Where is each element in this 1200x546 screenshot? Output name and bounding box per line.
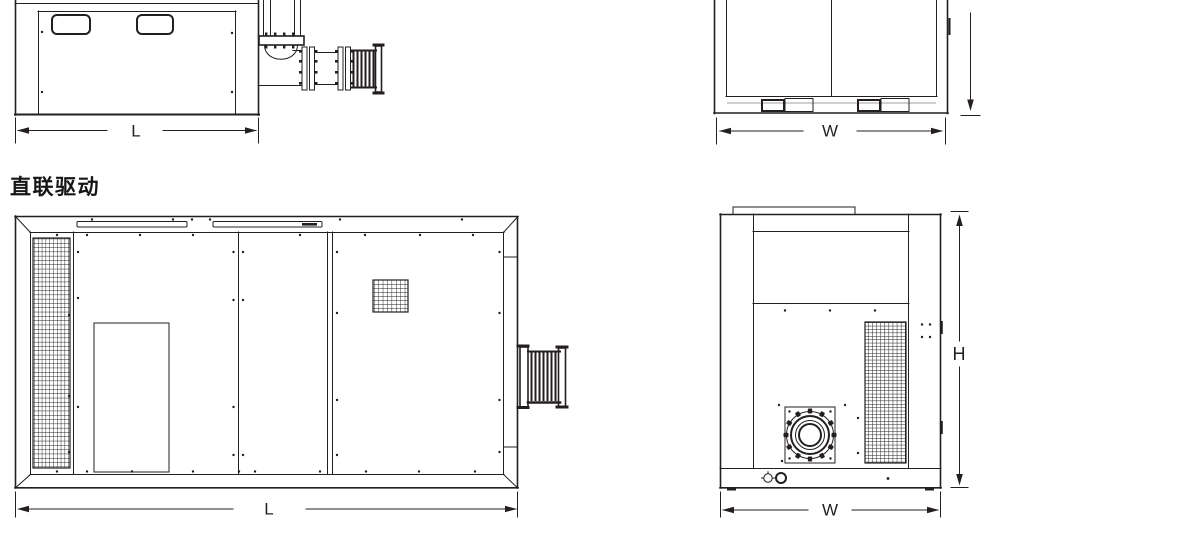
dimension-label-height-direct-drive: H bbox=[953, 345, 966, 363]
roof-cap bbox=[733, 207, 855, 215]
arrowhead-left bbox=[17, 506, 29, 512]
roof-slots bbox=[77, 222, 322, 228]
outlet-bellows bbox=[517, 345, 569, 410]
arrowhead-down bbox=[967, 100, 974, 112]
screw-dots bbox=[41, 31, 233, 93]
discharge-flange-port bbox=[784, 407, 837, 463]
intake-louver-grille bbox=[33, 238, 70, 468]
foot-block bbox=[785, 99, 813, 112]
vent-grille-tall bbox=[865, 322, 906, 463]
dimension-line-height-partial bbox=[961, 13, 980, 116]
cabinet-outline bbox=[714, 0, 950, 114]
arrowhead-left bbox=[719, 128, 731, 134]
direct-drive-front-view-drawing bbox=[700, 200, 1000, 530]
direct-drive-section-title: 直联驱动 bbox=[10, 177, 100, 198]
screw-dots bbox=[56, 218, 501, 472]
dimension-label-length-top: L bbox=[131, 123, 140, 140]
vent-grille-small bbox=[373, 280, 408, 312]
foot-block bbox=[881, 99, 909, 112]
top-front-view-drawing bbox=[700, 0, 1000, 150]
arrowhead-left bbox=[722, 507, 734, 513]
cabinet-outline bbox=[15, 216, 518, 488]
arrowhead-up bbox=[956, 215, 963, 227]
arrowhead-down bbox=[956, 474, 963, 486]
expansion-bellows bbox=[351, 44, 385, 95]
dimension-label-width-top: W bbox=[822, 123, 838, 140]
drawing-sheet: 直联驱动 L W L W H bbox=[0, 0, 1200, 546]
dimension-label-length-direct-drive: L bbox=[264, 501, 273, 518]
bolted-flange-pair bbox=[299, 47, 318, 90]
arrowhead-right bbox=[505, 506, 517, 512]
foot-block bbox=[762, 100, 784, 111]
cabinet-outline bbox=[15, 0, 259, 115]
foot-block bbox=[858, 100, 880, 111]
handle-slot bbox=[52, 15, 90, 34]
flange-bolts bbox=[265, 33, 294, 49]
panel-seams bbox=[74, 232, 333, 474]
discharge-pipe-assembly bbox=[258, 0, 385, 95]
handle-slot bbox=[137, 15, 173, 34]
base-skid bbox=[727, 99, 936, 112]
top-side-view-drawing bbox=[0, 0, 420, 150]
access-door-panel bbox=[94, 323, 169, 472]
bolted-flange-pair bbox=[335, 47, 354, 90]
arrowhead-left bbox=[17, 127, 29, 133]
arrowhead-right bbox=[931, 128, 943, 134]
dimension-label-width-direct-drive: W bbox=[822, 502, 838, 519]
arrowhead-right bbox=[245, 127, 257, 133]
arrowhead-right bbox=[927, 507, 939, 513]
base-knockouts bbox=[762, 472, 787, 483]
direct-drive-side-view-drawing bbox=[0, 200, 600, 530]
